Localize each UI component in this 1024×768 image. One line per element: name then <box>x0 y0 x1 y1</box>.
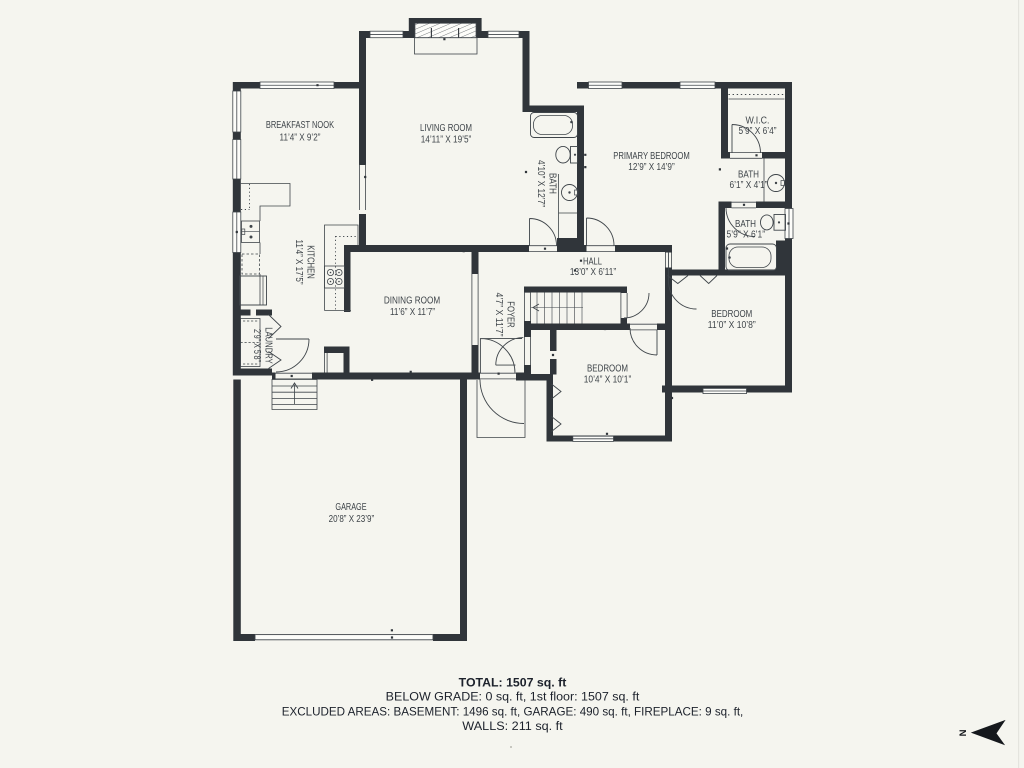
svg-text:BATH: BATH <box>546 173 557 194</box>
svg-text:BEDROOM: BEDROOM <box>587 364 628 375</box>
svg-text:EXCLUDED AREAS: BASEMENT: 1496: EXCLUDED AREAS: BASEMENT: 1496 sq. ft, G… <box>282 705 744 719</box>
svg-text:TOTAL: 1507 sq. ft: TOTAL: 1507 sq. ft <box>459 675 567 689</box>
svg-text:14’11” X 19’5”: 14’11” X 19’5” <box>421 134 472 145</box>
svg-text:13’0” X 6’11”: 13’0” X 6’11” <box>570 267 616 278</box>
svg-text:BEDROOM: BEDROOM <box>711 309 752 320</box>
svg-text:11’4” X 9’2”: 11’4” X 9’2” <box>280 133 321 144</box>
svg-text:LAUNDRY: LAUNDRY <box>262 327 273 364</box>
svg-text:W.I.C.: W.I.C. <box>746 116 770 127</box>
svg-text:BREAKFAST NOOK: BREAKFAST NOOK <box>266 120 335 131</box>
svg-text:11’0” X 10’8”: 11’0” X 10’8” <box>708 320 756 331</box>
svg-text:11’4” X 17’5”: 11’4” X 17’5” <box>293 240 304 285</box>
svg-text:BATH: BATH <box>738 170 759 181</box>
svg-text:N: N <box>957 729 968 736</box>
svg-text:6’1” X 4’1”: 6’1” X 4’1” <box>730 180 768 191</box>
svg-text:KITCHEN: KITCHEN <box>304 245 315 279</box>
svg-text:5’9” X 6’1”: 5’9” X 6’1” <box>727 230 766 241</box>
svg-text:4’7” X 11’7”: 4’7” X 11’7” <box>493 293 504 337</box>
svg-text:BELOW GRADE: 0 sq. ft, 1st flo: BELOW GRADE: 0 sq. ft, 1st floor: 1507 s… <box>386 690 640 704</box>
svg-text:WALLS: 211 sq. ft: WALLS: 211 sq. ft <box>462 719 563 733</box>
svg-text:LIVING ROOM: LIVING ROOM <box>420 123 472 134</box>
svg-text:5’9” X 6’4”: 5’9” X 6’4” <box>739 126 777 137</box>
svg-text:11’6” X 11’7”: 11’6” X 11’7” <box>390 307 435 318</box>
svg-text:10’4” X 10’1”: 10’4” X 10’1” <box>584 374 632 385</box>
svg-text:PRIMARY BEDROOM: PRIMARY BEDROOM <box>613 151 690 162</box>
svg-text:12’9” X 14’9”: 12’9” X 14’9” <box>628 162 674 173</box>
svg-text:20’8” X 23’9”: 20’8” X 23’9” <box>329 514 375 525</box>
svg-text:2’9” X 5’8”: 2’9” X 5’8” <box>251 329 262 362</box>
svg-text:FOYER: FOYER <box>504 301 515 327</box>
svg-text:GARAGE: GARAGE <box>335 502 367 513</box>
svg-text:4’10” X 12’7”: 4’10” X 12’7” <box>535 160 546 207</box>
svg-text:DINING ROOM: DINING ROOM <box>384 296 440 307</box>
svg-text:BATH: BATH <box>735 219 756 230</box>
